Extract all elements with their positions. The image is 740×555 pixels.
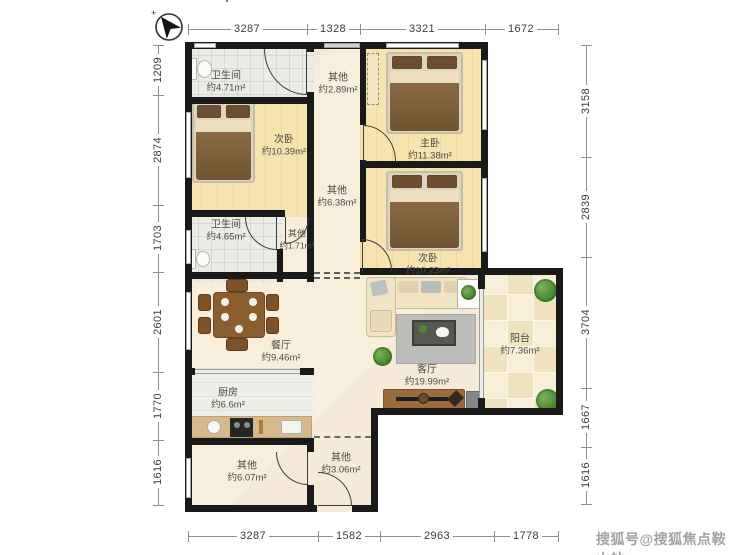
window [194, 43, 216, 48]
dim-tick [581, 257, 592, 258]
dim-tick [153, 272, 164, 273]
room-label-master: 主卧约11.38m² [408, 137, 452, 162]
room-label-entry: 其他约2.89m² [318, 71, 357, 96]
table-plant [419, 325, 427, 333]
dim-tick [581, 504, 592, 505]
dining-chair [266, 294, 279, 311]
pillow [197, 105, 221, 118]
room-label-living: 客厅约19.99m² [405, 363, 449, 388]
room-area: 约19.99m² [405, 376, 449, 388]
dim-tick [485, 24, 486, 35]
open-passage-dashed [314, 272, 360, 279]
bed-blanket [196, 132, 251, 180]
room-label-bathroom-1: 卫生间约4.71m² [206, 69, 245, 94]
room-area: 约10.39m² [262, 146, 306, 158]
room-name: 厨房 [218, 387, 238, 398]
plate [249, 313, 257, 321]
bed-sheet [196, 120, 251, 132]
dim-value: 3704 [580, 306, 592, 338]
wall [360, 42, 366, 125]
dashed-boundary [314, 436, 371, 438]
wall [556, 268, 563, 415]
room-area: 约4.71m² [206, 82, 245, 94]
closet-dashed [367, 53, 379, 105]
room-area: 约6.07m² [227, 472, 266, 484]
dim-value: 1616 [580, 459, 592, 491]
plant-icon [534, 279, 557, 302]
compass-north-icon: + [147, 5, 189, 52]
wall [185, 97, 314, 104]
dim-value: 1616 [152, 456, 164, 488]
dining-chair [226, 338, 248, 351]
watermark: 搜狐号@搜狐焦点鞍山站 [596, 529, 740, 555]
dim-tick [581, 447, 592, 448]
dim-value: 1703 [152, 222, 164, 254]
room-area: 约7.36m² [500, 345, 539, 357]
dim-line [158, 45, 159, 505]
wall [185, 438, 314, 445]
dim-tick [153, 372, 164, 373]
pillow [226, 105, 250, 118]
room-label-kitchen: 厨房约6.6m² [211, 386, 245, 411]
bed-sheet [390, 71, 459, 83]
sink-icon [207, 420, 221, 434]
room-name: 卫生间 [211, 70, 241, 81]
plant-icon [373, 347, 392, 366]
tv-decor [418, 393, 429, 404]
wall [307, 485, 314, 512]
room-area: 约6.38m² [317, 197, 356, 209]
cutting-board [259, 420, 263, 434]
sofa-cushion [398, 281, 418, 293]
dim-value: 1667 [580, 401, 592, 433]
window [386, 43, 459, 48]
wall [371, 408, 378, 512]
armchair [370, 310, 392, 332]
dim-value: 3321 [406, 23, 438, 35]
dim-value: 1770 [152, 390, 164, 422]
dining-chair [266, 317, 279, 334]
dim-value: 2874 [152, 134, 164, 166]
dim-tick [153, 95, 164, 96]
room-label-other-3: 其他约3.06m² [321, 451, 360, 476]
bed-blanket [390, 83, 459, 131]
plate [249, 298, 257, 306]
room-area: 约2.89m² [318, 84, 357, 96]
plant-icon [461, 285, 476, 300]
pillow [392, 56, 422, 69]
bed-blanket [390, 202, 459, 248]
coffee-table [412, 320, 456, 346]
bed-sheet [390, 190, 459, 202]
wall [478, 275, 485, 289]
plate [221, 298, 229, 306]
plate [221, 313, 229, 321]
dim-value: 1672 [505, 23, 537, 35]
wall [478, 398, 485, 410]
room-label-closet: 其他约1.71m² [280, 229, 315, 252]
dim-value: 2839 [580, 191, 592, 223]
dim-tick [318, 531, 319, 542]
dim-value: 1778 [510, 530, 542, 542]
pillow [392, 175, 422, 188]
balcony-sliding-door [479, 289, 484, 398]
dim-value: 2963 [421, 530, 453, 542]
room-name: 次卧 [274, 134, 294, 145]
room-label-balcony: 阳台约7.36m² [500, 332, 539, 357]
floorplan-canvas: + [0, 0, 740, 555]
window [186, 230, 191, 264]
entry-door-top [324, 43, 360, 48]
room-label-bedroom-left: 次卧约10.39m² [262, 133, 306, 158]
room-name: 其他 [237, 460, 257, 471]
dim-tick [153, 505, 164, 506]
dining-chair [198, 294, 211, 311]
dim-tick [188, 531, 189, 542]
wall [371, 408, 563, 415]
dining-chair [198, 317, 211, 334]
dim-tick [380, 531, 381, 542]
pillow [427, 175, 457, 188]
room-label-hallway: 其他约6.38m² [317, 184, 356, 209]
dim-tick [558, 531, 559, 542]
dim-value: 1328 [317, 23, 349, 35]
plate [235, 325, 243, 333]
wall [360, 168, 366, 242]
window [482, 178, 487, 252]
room-label-other-6: 其他约6.07m² [227, 459, 266, 484]
room-name: 次卧 [418, 253, 438, 264]
room-name: 其他 [288, 229, 306, 239]
outside-bottom-right [378, 415, 564, 515]
dim-tick [153, 205, 164, 206]
pillow [427, 56, 457, 69]
room-area: 约10.23m² [406, 265, 450, 277]
room-name: 阳台 [510, 333, 530, 344]
room-area: 约1.71m² [280, 240, 315, 251]
wall [307, 92, 314, 282]
wall [300, 368, 314, 375]
room-name: 其他 [328, 72, 348, 83]
dim-tick [581, 45, 592, 46]
wall [307, 445, 314, 452]
dim-value: 3287 [231, 23, 263, 35]
wall [185, 505, 317, 512]
wall [185, 368, 195, 375]
dim-tick [360, 24, 361, 35]
dim-value: 3158 [580, 85, 592, 117]
dim-value: 3287 [237, 530, 269, 542]
dim-tick [307, 24, 308, 35]
room-area: 约3.06m² [321, 464, 360, 476]
window [186, 292, 191, 350]
room-name: 其他 [331, 452, 351, 463]
svg-text:+: + [151, 8, 156, 18]
table-decor [436, 327, 449, 337]
room-name: 主卧 [420, 138, 440, 149]
burner [244, 422, 250, 428]
room-name: 客厅 [417, 364, 437, 375]
room-label-dining: 餐厅约9.46m² [261, 339, 300, 364]
window [186, 112, 191, 178]
dim-tick [581, 388, 592, 389]
window [482, 60, 487, 130]
room-label-bathroom-2: 卫生间约4.65m² [206, 218, 245, 243]
room-label-bedroom-2: 次卧约10.23m² [406, 252, 450, 277]
window [186, 458, 191, 498]
appliance [281, 420, 302, 434]
room-area: 约11.38m² [408, 150, 452, 162]
sofa-cushion [421, 281, 441, 293]
kitchen-glass-partition [195, 369, 300, 374]
wall [307, 42, 314, 52]
dim-tick [581, 157, 592, 158]
toilet-icon [196, 251, 210, 267]
dim-value: 2601 [152, 306, 164, 338]
stove-icon [230, 418, 253, 437]
dining-chair [226, 279, 248, 292]
room-area: 约6.6m² [211, 399, 245, 411]
dim-tick [153, 440, 164, 441]
room-name: 卫生间 [211, 219, 241, 230]
dim-value: 1209 [152, 54, 164, 86]
wall [185, 272, 314, 279]
burner [234, 422, 240, 428]
dim-tick [558, 24, 559, 35]
wall [185, 210, 285, 217]
room-name: 其他 [327, 185, 347, 196]
 [226, 0, 228, 2]
dim-value: 1582 [333, 530, 365, 542]
room-name: 餐厅 [271, 340, 291, 351]
dim-tick [494, 531, 495, 542]
room-area: 约4.65m² [206, 231, 245, 243]
room-area: 约9.46m² [261, 352, 300, 364]
outside-top-right [488, 42, 564, 269]
